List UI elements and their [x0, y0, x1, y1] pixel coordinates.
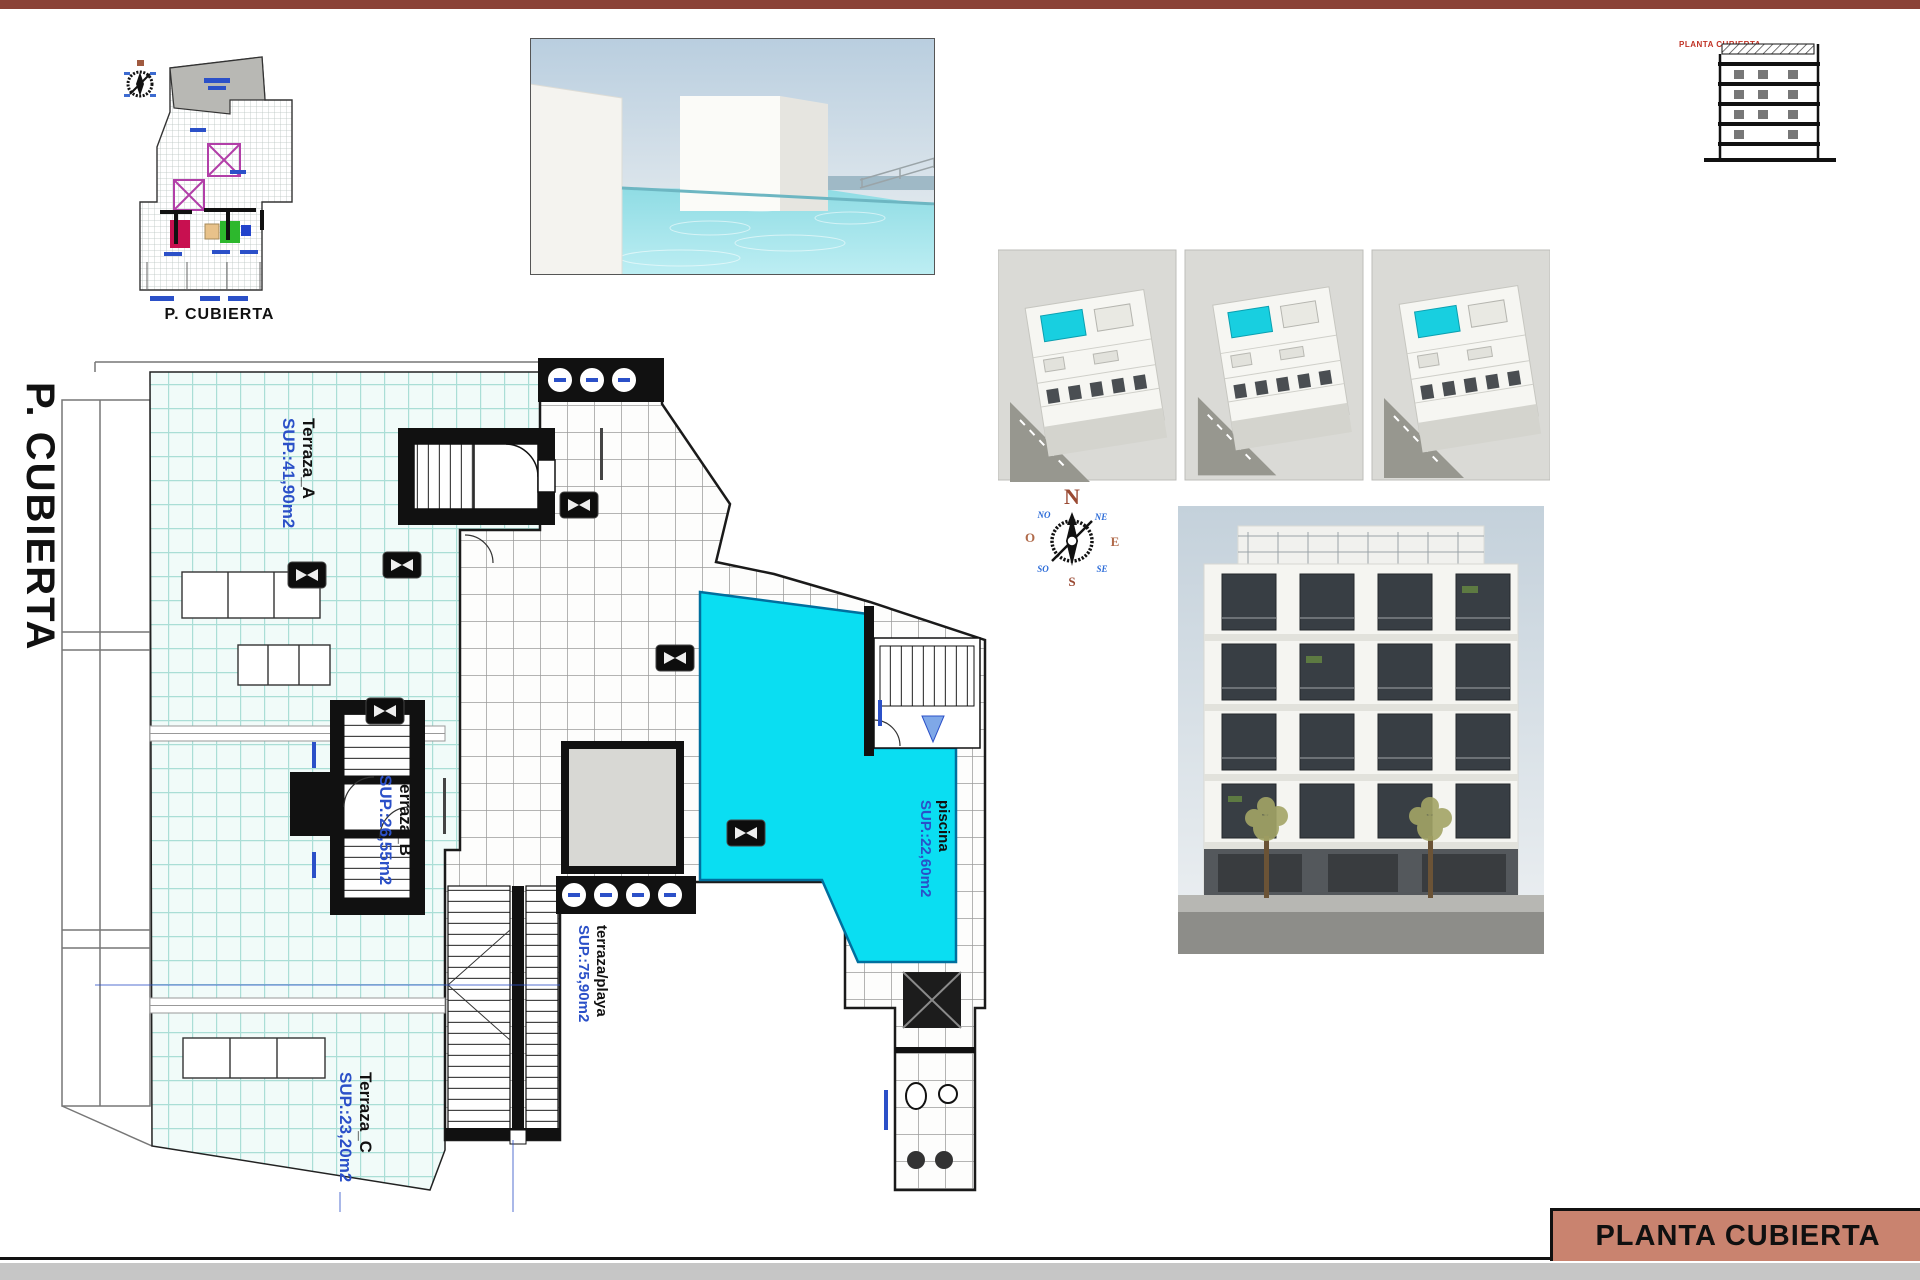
label-terraza-b: Terraza_BSUP.:26,55m2 — [375, 775, 415, 885]
vent-circle-row-bottom — [556, 876, 696, 914]
label-terraza-a: Terraza_ASUP.:41,90m2 — [278, 418, 318, 528]
sidewalk — [1178, 895, 1544, 912]
mini-compass-icon — [124, 60, 156, 97]
site-plan-caption: P. CUBIERTA — [112, 306, 327, 324]
stair-corridor — [445, 886, 560, 1144]
penthouse — [1238, 526, 1484, 568]
garage-doors — [1218, 854, 1506, 892]
drawing-sheet: P. CUBIERTA — [0, 0, 1920, 1280]
compass-so: SO — [1037, 564, 1049, 574]
compass-no: NO — [1037, 510, 1051, 520]
street — [1178, 912, 1544, 954]
floor-plan — [50, 352, 995, 1212]
label-terraza-c: Terraza_CSUP.:23,20m2 — [335, 1072, 375, 1182]
site-patch-tan — [205, 224, 219, 239]
sheet-title: PLANTA CUBIERTA — [1595, 1220, 1880, 1253]
vent-circle-row-top — [538, 358, 664, 402]
aerial-renders — [998, 248, 1550, 484]
stair-block-a — [398, 428, 555, 525]
pool-render — [530, 38, 935, 275]
site-patch-blue — [241, 225, 251, 236]
compass-rose: N S E O NO NE SO SE — [1022, 478, 1122, 593]
compass-s: S — [1068, 574, 1075, 589]
roof-access-box — [565, 745, 680, 870]
section-walls — [1720, 44, 1818, 158]
compass-e: E — [1111, 534, 1120, 549]
compass-se: SE — [1096, 564, 1107, 574]
compass-n: N — [1064, 484, 1080, 509]
label-terraza-playa: terraza/playaSUP.:75,90m2 — [575, 925, 610, 1022]
compass-ne: NE — [1094, 512, 1108, 522]
site-key-plan — [112, 52, 327, 304]
elevator-box — [903, 972, 961, 1028]
facade-render — [1178, 506, 1544, 954]
top-accent-bar — [0, 0, 1920, 9]
title-block: PLANTA CUBIERTA — [1550, 1208, 1920, 1261]
label-piscina: piscinaSUP.:22,60m2 — [917, 800, 952, 897]
floor-slabs — [1718, 62, 1820, 146]
bottom-strip — [0, 1263, 1920, 1280]
white-wall — [530, 84, 622, 275]
compass-o: O — [1025, 530, 1035, 545]
section-drawing — [1700, 40, 1840, 168]
ground-line — [1704, 158, 1836, 162]
roof-slab — [1722, 44, 1814, 54]
white-cube-side — [780, 96, 828, 211]
site-patch-crimson — [170, 220, 190, 248]
